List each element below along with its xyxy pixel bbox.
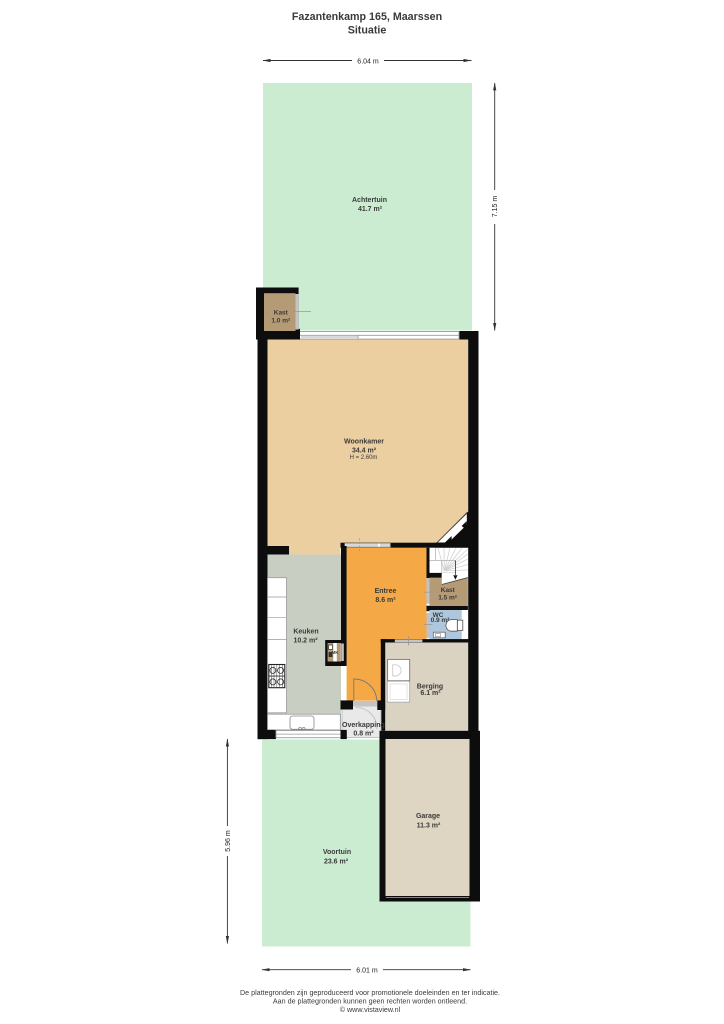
svg-text:10.2 m²: 10.2 m² [293,638,318,645]
svg-text:0.8 m²: 0.8 m² [353,731,374,738]
svg-text:0.9 m²: 0.9 m² [431,617,451,624]
svg-text:Aan de plattegronden kunnen ge: Aan de plattegronden kunnen geen rechten… [273,998,467,1006]
svg-text:Keuken: Keuken [293,629,318,636]
svg-text:Woonkamer: Woonkamer [344,439,384,446]
svg-text:6.1 m²: 6.1 m² [420,690,441,697]
svg-text:34.4 m²: 34.4 m² [352,448,377,455]
svg-text:Fazantenkamp 165, Maarssen: Fazantenkamp 165, Maarssen [292,11,442,23]
svg-text:Kast: Kast [274,310,289,317]
svg-text:Overkapping: Overkapping [342,722,385,729]
svg-text:1.5 m²: 1.5 m² [438,595,458,602]
svg-text:1.0 m²: 1.0 m² [271,318,291,325]
svg-text:Situatie: Situatie [348,25,387,37]
svg-text:Garage: Garage [416,813,440,820]
svg-text:7.15 m: 7.15 m [492,196,499,218]
svg-text:De plattegronden zijn geproduc: De plattegronden zijn geproduceerd voor … [240,989,500,997]
svg-text:6.01 m: 6.01 m [356,968,378,975]
svg-text:6.04 m: 6.04 m [357,58,379,65]
svg-text:MK: MK [332,650,340,655]
svg-text:Kast: Kast [441,587,456,594]
svg-text:41.7 m²: 41.7 m² [358,206,383,213]
svg-text:23.6 m²: 23.6 m² [324,859,349,866]
svg-text:Achtertuin: Achtertuin [352,197,387,204]
svg-text:H = 2.60m: H = 2.60m [350,455,378,461]
svg-text:11.3 m²: 11.3 m² [417,823,441,830]
svg-text:Entree: Entree [375,588,397,595]
svg-text:8.6 m²: 8.6 m² [375,597,396,604]
svg-text:Voortuin: Voortuin [323,849,351,856]
svg-text:© www.vistaview.nl: © www.vistaview.nl [340,1006,401,1014]
svg-text:5.96 m: 5.96 m [225,830,232,852]
